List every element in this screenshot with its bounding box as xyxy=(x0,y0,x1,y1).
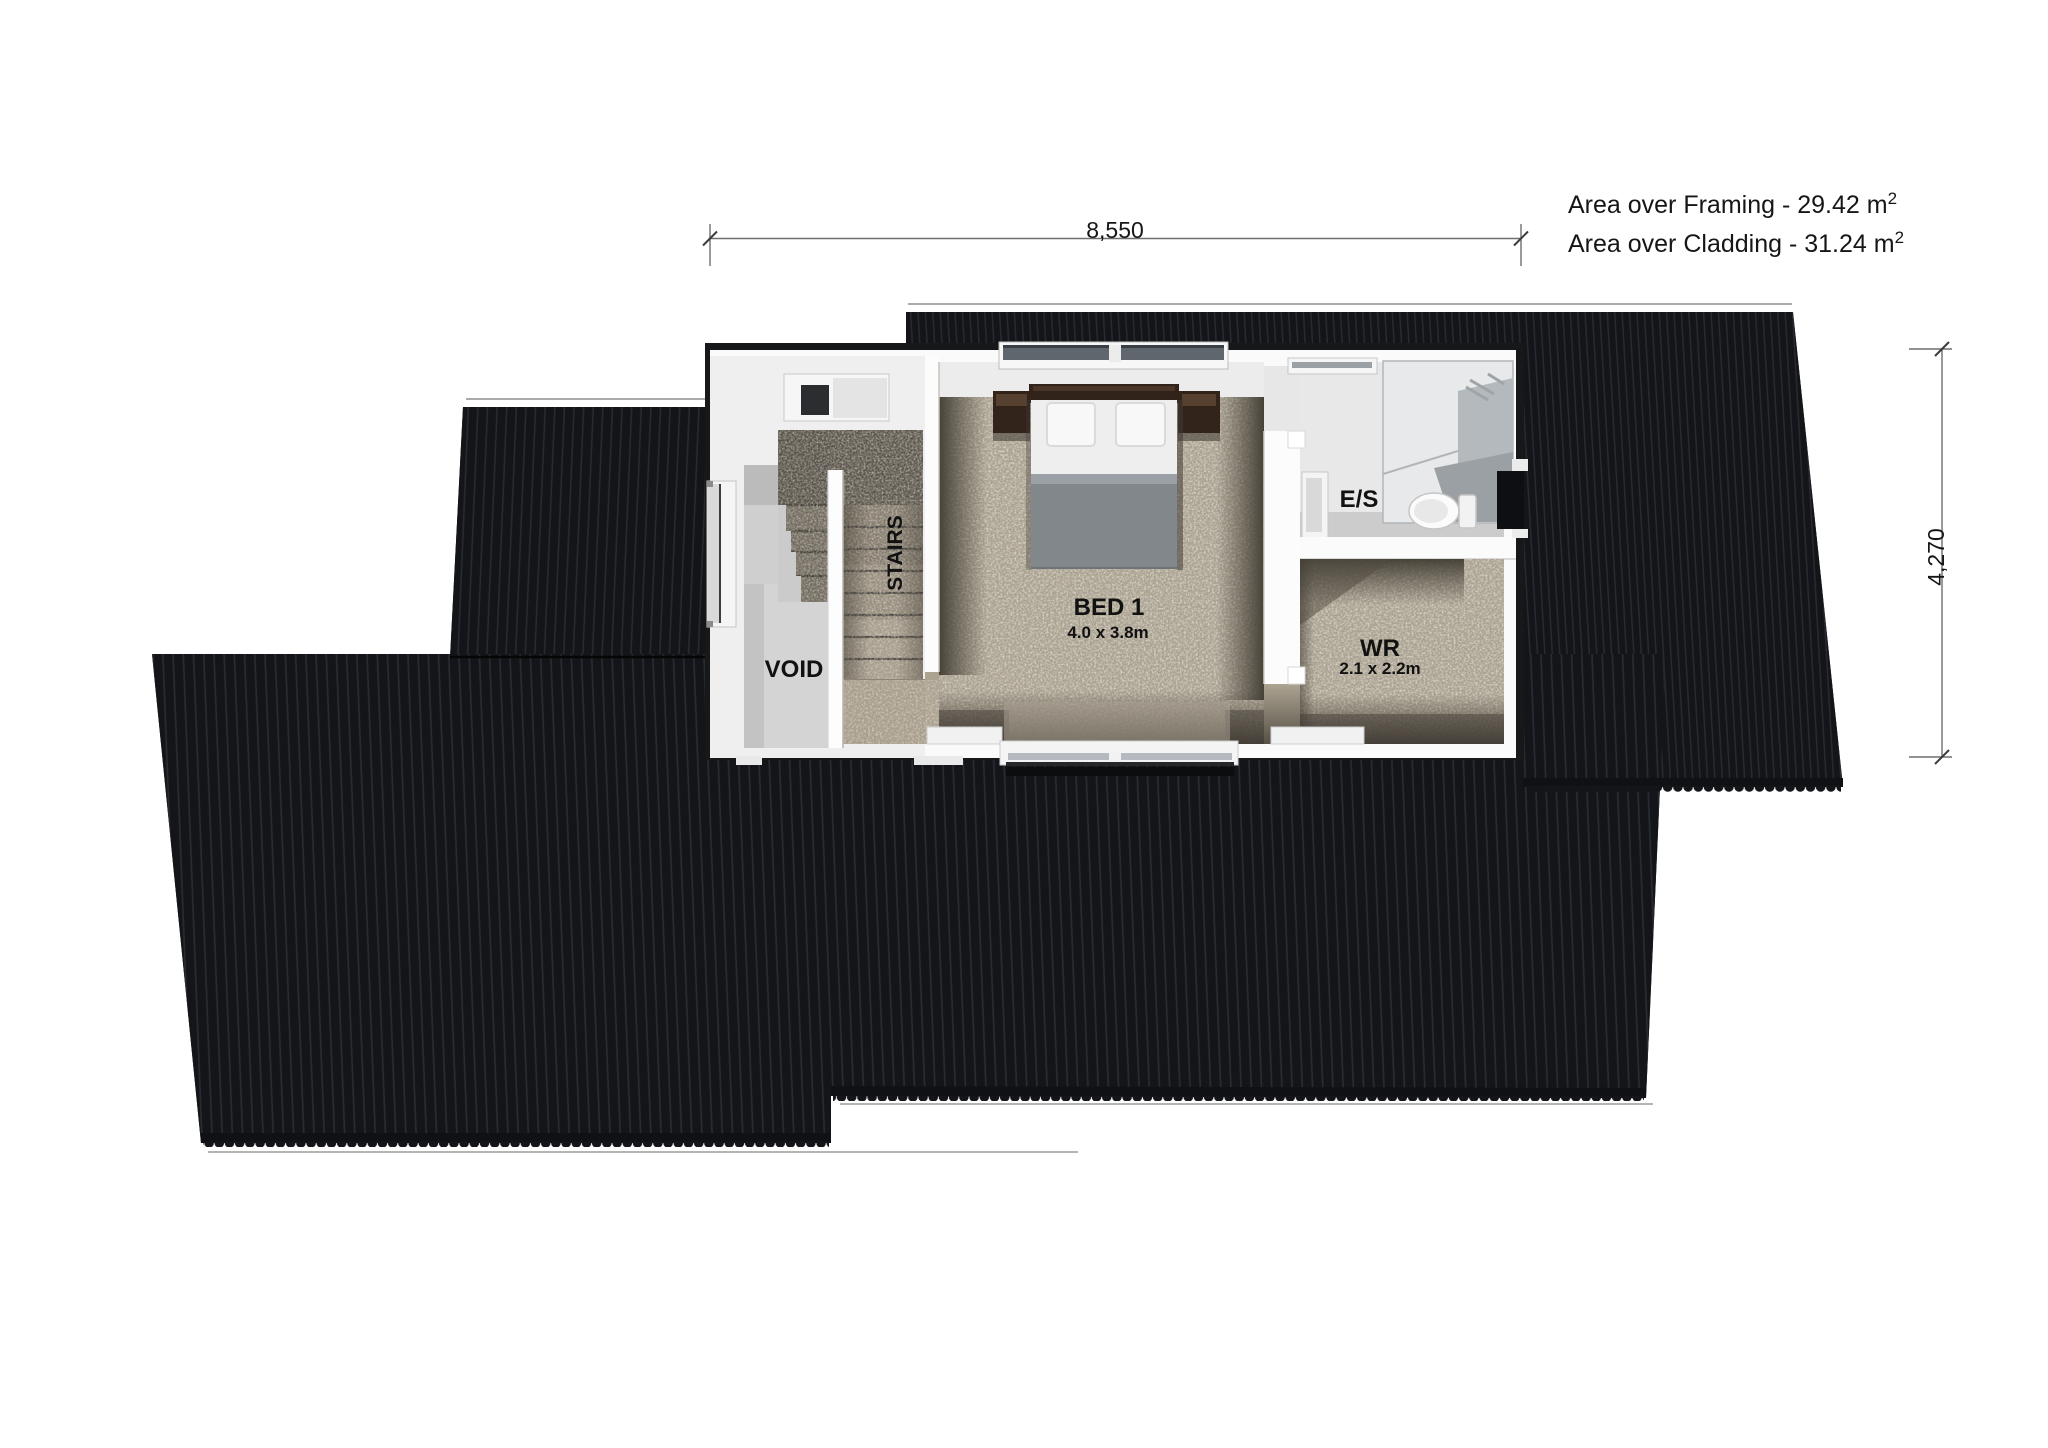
svg-text:8,550: 8,550 xyxy=(1086,217,1144,243)
svg-text:WR: WR xyxy=(1360,635,1400,662)
svg-text:E/S: E/S xyxy=(1340,486,1379,513)
svg-text:Area over Cladding - 31.24 m2: Area over Cladding - 31.24 m2 xyxy=(1568,228,1904,258)
svg-text:Area over Framing - 29.42 m2: Area over Framing - 29.42 m2 xyxy=(1568,189,1897,219)
svg-text:BED 1: BED 1 xyxy=(1074,594,1145,621)
svg-text:2.1 x 2.2m: 2.1 x 2.2m xyxy=(1339,659,1420,678)
svg-text:4.0 x 3.8m: 4.0 x 3.8m xyxy=(1067,623,1148,642)
svg-text:VOID: VOID xyxy=(765,656,824,683)
svg-text:STAIRS: STAIRS xyxy=(884,515,907,590)
svg-text:4,270: 4,270 xyxy=(1923,528,1949,586)
